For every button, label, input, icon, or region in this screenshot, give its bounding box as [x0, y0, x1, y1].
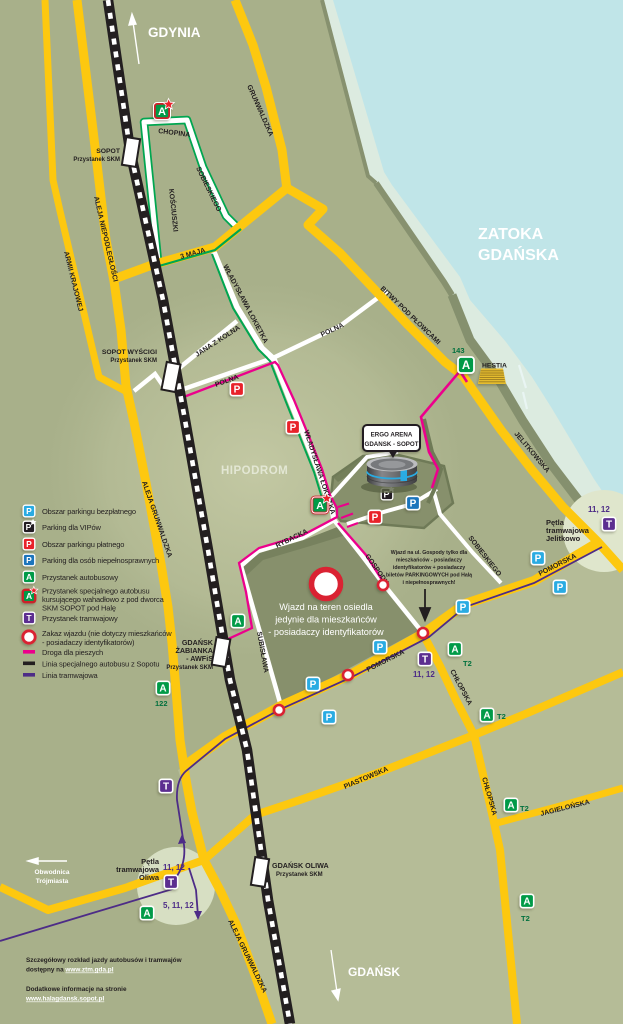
- svg-text:P: P: [535, 554, 542, 565]
- svg-text:- posiadaczy identyfikatorów): - posiadaczy identyfikatorów): [42, 638, 135, 647]
- svg-text:A: A: [523, 897, 530, 908]
- svg-text:i niepełnosprawnych!: i niepełnosprawnych!: [402, 580, 455, 586]
- svg-text:Jelitkowo: Jelitkowo: [546, 534, 581, 543]
- svg-text:dostępny na www.ztm.gda.pl: dostępny na www.ztm.gda.pl: [26, 967, 114, 974]
- svg-text:HESTIA: HESTIA: [482, 363, 507, 370]
- svg-text:A: A: [316, 500, 324, 512]
- svg-text:Oliwa: Oliwa: [139, 873, 160, 882]
- svg-text:- posiadaczy identyfikatorów: - posiadaczy identyfikatorów: [268, 627, 384, 637]
- svg-text:P: P: [460, 603, 467, 614]
- svg-text:T: T: [163, 782, 169, 793]
- svg-text:GDANSK - SOPOT: GDANSK - SOPOT: [365, 441, 419, 448]
- svg-text:Przystanek SKM: Przystanek SKM: [110, 358, 157, 364]
- svg-text:Obszar parkingu bezpłatnego: Obszar parkingu bezpłatnego: [42, 507, 136, 516]
- svg-text:Przystanek tramwajowy: Przystanek tramwajowy: [42, 614, 118, 623]
- svg-text:Przystanek SKM: Przystanek SKM: [73, 157, 120, 163]
- svg-text:HIPODROM: HIPODROM: [221, 465, 288, 477]
- svg-text:T: T: [606, 520, 612, 531]
- svg-text:A: A: [26, 591, 32, 601]
- svg-text:A: A: [143, 909, 150, 920]
- svg-text:P: P: [26, 522, 32, 532]
- svg-text:GDAŃSK: GDAŃSK: [348, 964, 400, 979]
- svg-text:11, 12: 11, 12: [413, 670, 435, 679]
- svg-text:SOPOT WYŚCIGI: SOPOT WYŚCIGI: [102, 347, 157, 356]
- svg-text:Dodatkowe informacje na stroni: Dodatkowe informacje na stronie: [26, 986, 127, 993]
- svg-text:A: A: [159, 684, 166, 695]
- svg-text:Obwodnica: Obwodnica: [34, 869, 69, 876]
- svg-text:A: A: [451, 645, 458, 656]
- svg-text:A: A: [462, 360, 470, 372]
- svg-text:Wjazd na teren osiedla: Wjazd na teren osiedla: [279, 602, 373, 612]
- svg-text:Linia tramwajowa: Linia tramwajowa: [42, 671, 99, 680]
- svg-text:GDAŃSK OLIWA: GDAŃSK OLIWA: [272, 861, 329, 870]
- svg-text:P: P: [557, 583, 564, 594]
- svg-text:SOPOT: SOPOT: [96, 148, 121, 155]
- svg-text:P: P: [310, 680, 317, 691]
- svg-text:Zakaz wjazdu (nie dotyczy mies: Zakaz wjazdu (nie dotyczy mieszkańców: [42, 629, 172, 638]
- svg-text:P: P: [377, 643, 384, 654]
- svg-text:5, 11, 12: 5, 11, 12: [163, 901, 194, 910]
- svg-text:P: P: [326, 713, 333, 724]
- svg-text:T2: T2: [521, 914, 530, 923]
- svg-text:Linia specjalnego autobusu z S: Linia specjalnego autobusu z Sopotu: [42, 660, 159, 669]
- svg-text:Obszar parkingu płatnego: Obszar parkingu płatnego: [42, 540, 124, 549]
- svg-text:P: P: [26, 506, 32, 516]
- svg-text:P: P: [290, 423, 297, 434]
- svg-text:A: A: [158, 106, 166, 118]
- svg-text:A: A: [26, 572, 32, 582]
- svg-text:T: T: [168, 878, 174, 889]
- svg-text:identyfikatorów + posiadaczy: identyfikatorów + posiadaczy: [393, 565, 465, 571]
- svg-text:Wjazd na ul. Gospody tylko dla: Wjazd na ul. Gospody tylko dla: [391, 550, 467, 556]
- svg-text:A: A: [234, 617, 241, 628]
- svg-text:SKM SOPOT pod Halę: SKM SOPOT pod Halę: [42, 604, 116, 613]
- svg-text:P: P: [26, 539, 32, 549]
- svg-text:jedynie dla mieszkańców: jedynie dla mieszkańców: [274, 615, 377, 625]
- svg-text:122: 122: [155, 699, 168, 708]
- svg-text:Przystanek SKM: Przystanek SKM: [276, 872, 323, 878]
- svg-text:P: P: [234, 385, 241, 396]
- svg-text:Droga dla pieszych: Droga dla pieszych: [42, 648, 103, 657]
- svg-text:Parking dla VIPów: Parking dla VIPów: [42, 523, 101, 532]
- svg-text:biletów PARKINGOWYCH pod Halą: biletów PARKINGOWYCH pod Halą: [386, 573, 472, 579]
- svg-text:Trójmiasta: Trójmiasta: [36, 878, 69, 885]
- svg-text:11, 12: 11, 12: [163, 863, 185, 872]
- svg-text:ZATOKA: ZATOKA: [478, 226, 544, 243]
- svg-text:ERGO ARENA: ERGO ARENA: [371, 432, 413, 439]
- svg-text:P: P: [372, 513, 379, 524]
- svg-text:A: A: [483, 711, 490, 722]
- svg-text:GDYNIA: GDYNIA: [148, 25, 201, 40]
- svg-text:T2: T2: [463, 659, 472, 668]
- svg-text:T2: T2: [497, 712, 506, 721]
- svg-text:P: P: [410, 499, 417, 510]
- svg-text:- AWFiS: - AWFiS: [186, 654, 213, 663]
- svg-text:T: T: [26, 613, 32, 623]
- svg-text:GDAŃSKA: GDAŃSKA: [478, 245, 559, 264]
- svg-text:mieszkańców - posiadaczy: mieszkańców - posiadaczy: [396, 558, 462, 564]
- svg-text:P: P: [26, 555, 32, 565]
- svg-text:Przystanek SKM: Przystanek SKM: [166, 665, 213, 671]
- svg-text:11, 12: 11, 12: [588, 505, 610, 514]
- svg-text:Parking dla osób niepełnospraw: Parking dla osób niepełnosprawnych: [42, 556, 159, 565]
- svg-text:Przystanek autobusowy: Przystanek autobusowy: [42, 573, 118, 582]
- svg-text:143: 143: [452, 346, 465, 355]
- svg-text:www.halagdansk.sopot.pl: www.halagdansk.sopot.pl: [25, 996, 104, 1003]
- svg-text:Szczegółowy rozkład jazdy auto: Szczegółowy rozkład jazdy autobusów i tr…: [26, 957, 182, 964]
- svg-text:T: T: [422, 655, 428, 666]
- svg-text:A: A: [507, 801, 514, 812]
- svg-text:T2: T2: [520, 804, 529, 813]
